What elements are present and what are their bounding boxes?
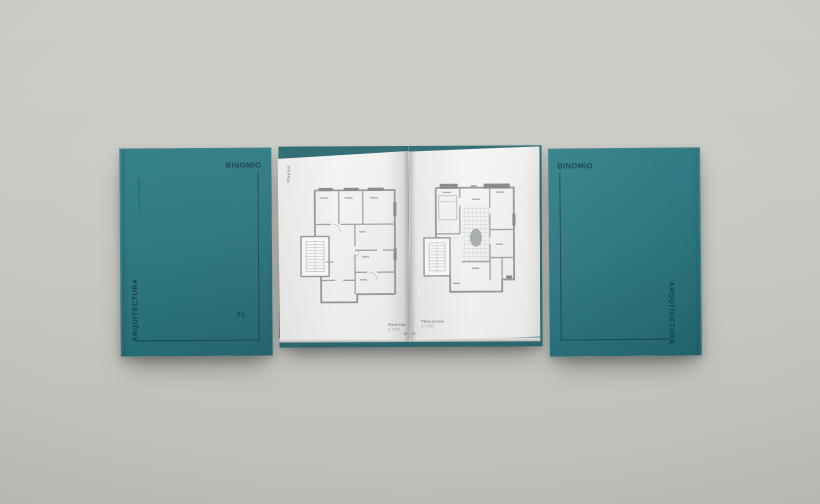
left-page: Plantas	[277, 151, 409, 341]
cover-vertical-rule	[559, 173, 561, 342]
cover-bottom-rule	[561, 339, 670, 341]
scene: BINOMIO Casa en Madrid ARQUITECTURA 01 P…	[0, 0, 820, 504]
caption-scale: E 1:100	[421, 324, 444, 328]
plan-caption-left: Planta baja E 1:100	[388, 323, 405, 332]
plan-caption-right: Planta primera E 1:100	[421, 320, 444, 329]
back-cover: BINOMIO ARQUITECTURA	[548, 147, 702, 356]
right-page: Planta primera E 1:100 19	[408, 146, 540, 340]
issue-number: 01	[237, 312, 245, 319]
cover-vertical-rule	[257, 172, 259, 342]
page-number-right: 19	[411, 332, 415, 336]
category-label: ARQUITECTURA	[132, 278, 139, 341]
page-number-left: 18	[403, 332, 407, 336]
floor-plan-right	[422, 179, 527, 302]
brand-name: BINOMIO	[557, 161, 593, 170]
front-cover: BINOMIO Casa en Madrid ARQUITECTURA 01	[119, 147, 272, 356]
cover-bottom-rule	[136, 340, 260, 342]
section-label: Plantas	[287, 165, 292, 182]
floor-plan-left	[299, 184, 404, 313]
category-label: ARQUITECTURA	[667, 281, 675, 344]
open-spread: Plantas	[275, 143, 544, 354]
project-label: Casa en Madrid	[138, 178, 142, 212]
brand-name: BINOMIO	[226, 161, 262, 170]
